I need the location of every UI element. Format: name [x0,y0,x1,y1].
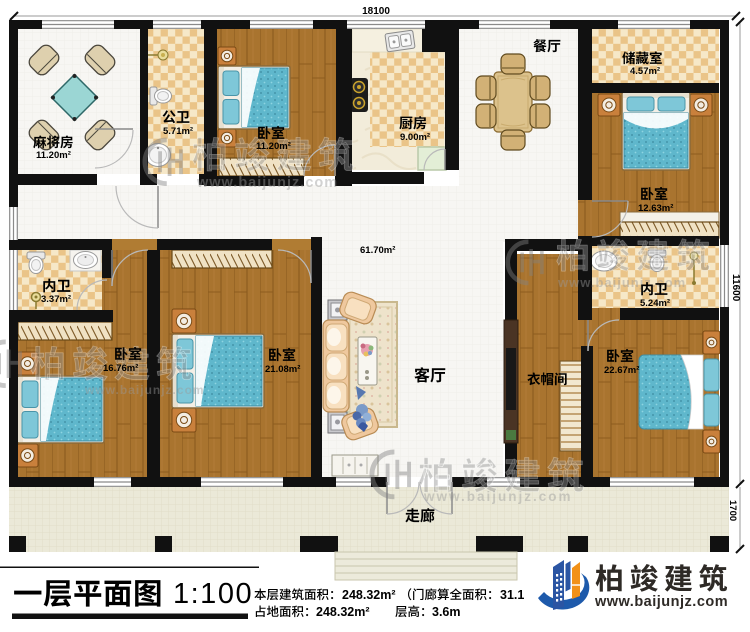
svg-text:5.24m²: 5.24m² [640,298,670,309]
svg-text:22.67m²: 22.67m² [604,365,639,376]
svg-text:www.baijunjz.com: www.baijunjz.com [557,275,686,290]
svg-text:18100: 18100 [362,6,390,17]
svg-text:11.20m²: 11.20m² [256,141,291,152]
svg-text:16.76m²: 16.76m² [103,363,138,374]
svg-text:3.6m: 3.6m [432,605,461,619]
svg-text:www.baijunjz.com: www.baijunjz.com [196,175,338,191]
svg-text:248.32m²: 248.32m² [342,588,396,602]
svg-text:www.baijunjz.com: www.baijunjz.com [423,489,573,504]
svg-text:5.71m²: 5.71m² [163,126,193,137]
svg-text:3.37m²: 3.37m² [41,294,71,305]
svg-text:21.08m²: 21.08m² [265,364,300,375]
svg-text:61.70m²: 61.70m² [360,245,395,256]
svg-text:1700: 1700 [727,500,738,521]
svg-text:11600: 11600 [730,274,741,302]
svg-text:www.baijunjz.com: www.baijunjz.com [84,383,205,397]
svg-text:12.63m²: 12.63m² [638,203,673,214]
svg-text:1:100: 1:100 [173,578,253,610]
svg-text:9.00m²: 9.00m² [400,132,430,143]
svg-text:4.57m²: 4.57m² [630,66,660,77]
svg-text:www.baijunjz.com: www.baijunjz.com [594,594,728,610]
svg-text:11.20m²: 11.20m² [36,150,71,161]
svg-text:31.1: 31.1 [500,588,524,602]
svg-text:248.32m²: 248.32m² [316,605,370,619]
